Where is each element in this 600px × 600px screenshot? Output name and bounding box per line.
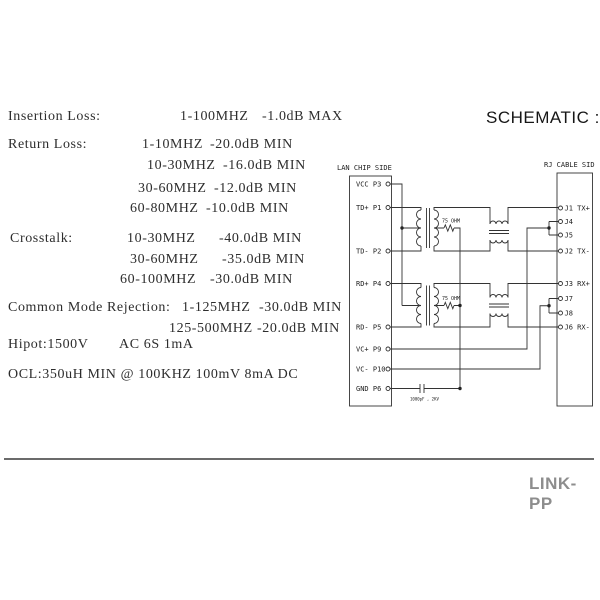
junction-dot — [458, 304, 461, 307]
capacitor: 1000pF , 2KV — [410, 384, 439, 402]
transformer-2 — [417, 286, 439, 326]
schematic-diagram: LAN CHIP SIDE VCC P3 TD+ P1 TD- P2 RD+ P… — [0, 0, 600, 600]
resistor-1-value-label: 75 OHM — [442, 219, 460, 225]
pin-label-j1-tx-plus: J1 TX+ — [565, 205, 590, 213]
pin-terminal — [559, 249, 563, 253]
transformer-1 — [417, 208, 439, 248]
pin-label-j5: J5 — [565, 232, 573, 240]
brand-logo: LINK-PP — [529, 474, 600, 514]
wires — [390, 184, 559, 389]
pin-terminal — [386, 282, 390, 286]
choke-2-core — [489, 304, 509, 307]
pin-terminal — [559, 325, 563, 329]
transformer-2-core — [427, 286, 430, 326]
pin-label-vcc-p3: VCC P3 — [356, 181, 381, 189]
choke-2-top-winding — [490, 295, 508, 298]
resistor-2-zigzag — [444, 302, 454, 308]
wire-rd-minus — [390, 324, 421, 328]
pin-terminal — [559, 282, 563, 286]
pin-terminal — [559, 233, 563, 237]
wire-vc-minus-j7-j8 — [390, 299, 559, 370]
capacitor-value-label: 1000pF , 2KV — [410, 397, 439, 402]
pin-label-j2-tx-minus: J2 TX- — [565, 248, 590, 256]
pin-terminal — [559, 297, 563, 301]
pin-label-rd-minus-p5: RD- P5 — [356, 324, 381, 332]
pin-label-td-minus-p2: TD- P2 — [356, 248, 381, 256]
pin-label-vc-plus-p9: VC+ P9 — [356, 346, 381, 354]
capacitor-plates — [420, 384, 424, 393]
pin-terminal — [386, 325, 390, 329]
pin-terminal — [386, 249, 390, 253]
pin-label-gnd-p6: GND P6 — [356, 385, 381, 393]
wire-td-plus — [390, 208, 421, 211]
choke-1-core — [489, 231, 509, 234]
junction-dot — [547, 304, 550, 307]
rj-cable-side-label: RJ CABLE SID — [544, 161, 595, 169]
resistor-1-zigzag — [444, 225, 454, 231]
wire-vcc-center-taps — [390, 184, 421, 306]
pin-label-vc-minus-p10: VC- P10 — [356, 366, 386, 374]
pin-terminal — [386, 206, 390, 210]
lan-chip-box: LAN CHIP SIDE VCC P3 TD+ P1 TD- P2 RD+ P… — [337, 164, 392, 406]
resistor-2-value-label: 75 OHM — [442, 296, 460, 302]
wire-vc-plus-j4-j5 — [390, 222, 559, 350]
wire-td-minus — [390, 246, 421, 251]
pin-label-j4: J4 — [565, 218, 573, 226]
wire-tx-secondary — [434, 208, 559, 252]
resistor-1: 75 OHM — [442, 219, 460, 232]
choke-1-bottom-winding — [490, 240, 508, 243]
common-mode-choke-1 — [489, 221, 509, 243]
resistor-2: 75 OHM — [442, 296, 460, 309]
pin-terminal — [559, 311, 563, 315]
pin-label-j7: J7 — [565, 295, 573, 303]
pin-label-j8: J8 — [565, 310, 573, 318]
pin-label-rd-plus-p4: RD+ P4 — [356, 280, 381, 288]
wire-rd-plus — [390, 284, 421, 288]
pin-terminal — [559, 206, 563, 210]
choke-2-bottom-winding — [490, 314, 508, 317]
pin-label-j3-rx-plus: J3 RX+ — [565, 280, 590, 288]
pin-terminal — [386, 347, 390, 351]
pin-label-j6-rx-minus: J6 RX- — [565, 324, 590, 332]
pin-terminal — [386, 387, 390, 391]
datasheet-page: Insertion Loss: 1-100MHZ -1.0dB MAX Retu… — [0, 0, 600, 600]
junction-dot — [458, 387, 461, 390]
junction-dot — [400, 226, 403, 229]
choke-1-top-winding — [490, 221, 508, 224]
pin-terminal — [386, 182, 390, 186]
footer-divider — [4, 458, 594, 460]
junction-dot — [547, 226, 550, 229]
common-mode-choke-2 — [489, 295, 509, 317]
pin-terminal — [559, 220, 563, 224]
pin-label-td-plus-p1: TD+ P1 — [356, 204, 381, 212]
lan-chip-side-label: LAN CHIP SIDE — [337, 164, 392, 172]
pin-terminal — [386, 367, 390, 371]
transformer-1-core — [427, 208, 430, 248]
